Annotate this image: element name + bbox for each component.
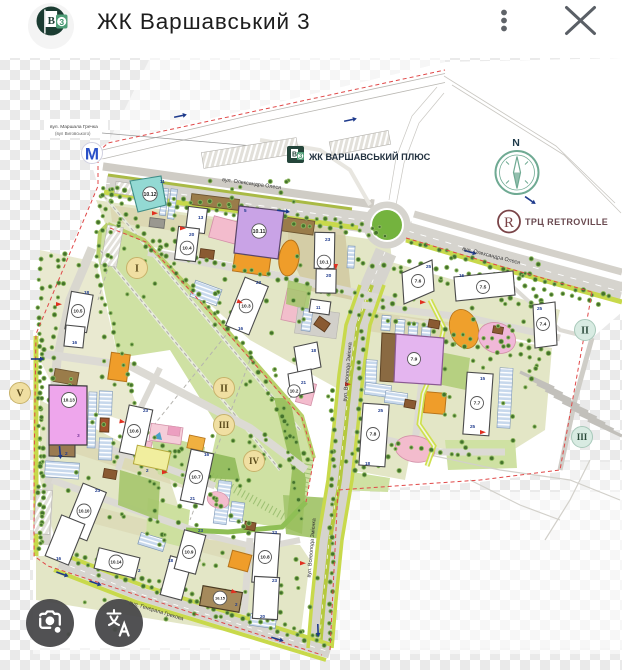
svg-text:23: 23 xyxy=(325,237,331,243)
svg-text:18: 18 xyxy=(311,348,317,353)
svg-text:16.15: 16.15 xyxy=(215,595,226,600)
svg-text:23: 23 xyxy=(143,408,149,413)
svg-text:(вул Виговського): (вул Виговського) xyxy=(55,131,91,136)
svg-text:3: 3 xyxy=(59,17,64,27)
svg-text:10.9: 10.9 xyxy=(185,550,194,555)
svg-text:7.7: 7.7 xyxy=(474,401,481,407)
svg-text:2: 2 xyxy=(65,451,68,457)
svg-text:10.2: 10.2 xyxy=(290,389,299,394)
svg-text:III: III xyxy=(577,432,588,442)
svg-text:ЖК Варшавський 3: ЖК Варшавський 3 xyxy=(97,9,311,34)
svg-text:21: 21 xyxy=(301,380,307,385)
svg-text:3: 3 xyxy=(77,433,80,439)
svg-text:16: 16 xyxy=(72,340,78,345)
svg-text:10.5: 10.5 xyxy=(74,309,83,314)
svg-text:7.6: 7.6 xyxy=(415,279,422,285)
svg-text:18: 18 xyxy=(365,461,371,466)
svg-text:16: 16 xyxy=(204,452,210,457)
svg-text:23: 23 xyxy=(198,528,204,533)
svg-text:2: 2 xyxy=(235,602,238,607)
svg-text:10.10: 10.10 xyxy=(79,509,91,514)
svg-text:25: 25 xyxy=(378,408,384,413)
svg-text:16: 16 xyxy=(56,556,62,561)
svg-text:10.8: 10.8 xyxy=(260,555,270,561)
svg-text:M: M xyxy=(85,145,99,164)
svg-text:11: 11 xyxy=(160,179,165,184)
svg-text:23: 23 xyxy=(272,578,278,583)
svg-text:10.14: 10.14 xyxy=(111,560,123,565)
svg-text:IV: IV xyxy=(249,456,260,466)
svg-text:2: 2 xyxy=(138,568,141,573)
svg-text:10.12: 10.12 xyxy=(144,192,157,198)
svg-text:23: 23 xyxy=(272,530,278,535)
svg-text:вул. Маршала Гречка: вул. Маршала Гречка xyxy=(50,124,98,130)
svg-text:10.3: 10.3 xyxy=(241,304,251,310)
svg-text:20: 20 xyxy=(326,273,332,279)
svg-text:10.7: 10.7 xyxy=(191,475,201,481)
svg-text:V: V xyxy=(16,388,24,399)
svg-text:10.1: 10.1 xyxy=(319,260,329,266)
svg-text:2: 2 xyxy=(146,468,149,473)
svg-text:10.13: 10.13 xyxy=(63,398,75,403)
svg-text:ТРЦ RETROVILLE: ТРЦ RETROVILLE xyxy=(525,217,608,227)
svg-text:10.11: 10.11 xyxy=(253,229,266,235)
svg-text:20: 20 xyxy=(189,232,195,238)
svg-text:I: I xyxy=(135,263,139,274)
svg-text:25: 25 xyxy=(537,306,543,311)
svg-text:7.5: 7.5 xyxy=(480,285,487,291)
svg-text:II: II xyxy=(581,325,589,336)
svg-text:10.4: 10.4 xyxy=(182,246,192,252)
svg-text:16: 16 xyxy=(459,273,465,278)
svg-text:В: В xyxy=(292,152,297,159)
svg-text:25: 25 xyxy=(470,424,476,429)
svg-text:III: III xyxy=(219,420,230,430)
svg-text:11: 11 xyxy=(316,305,321,310)
svg-text:7.9: 7.9 xyxy=(411,357,418,363)
svg-text:16: 16 xyxy=(238,326,244,331)
svg-text:7.8: 7.8 xyxy=(370,432,377,438)
svg-text:18: 18 xyxy=(84,290,90,295)
svg-text:10.6: 10.6 xyxy=(129,429,139,435)
svg-text:7.4: 7.4 xyxy=(540,322,547,328)
svg-text:25: 25 xyxy=(426,264,432,269)
svg-text:В: В xyxy=(48,15,56,27)
svg-text:II: II xyxy=(220,383,228,394)
svg-text:15: 15 xyxy=(480,376,486,381)
svg-text:ЖК ВАРШАВСЬКИЙ ПЛЮС: ЖК ВАРШАВСЬКИЙ ПЛЮС xyxy=(308,151,431,162)
svg-text:20: 20 xyxy=(260,614,266,619)
svg-text:13: 13 xyxy=(198,215,204,221)
svg-text:R: R xyxy=(504,215,514,231)
svg-text:N: N xyxy=(512,137,520,149)
svg-text:18: 18 xyxy=(168,558,174,563)
svg-text:23: 23 xyxy=(256,280,262,285)
svg-text:23: 23 xyxy=(95,488,101,493)
svg-text:5: 5 xyxy=(244,208,247,213)
svg-text:21: 21 xyxy=(190,496,196,501)
